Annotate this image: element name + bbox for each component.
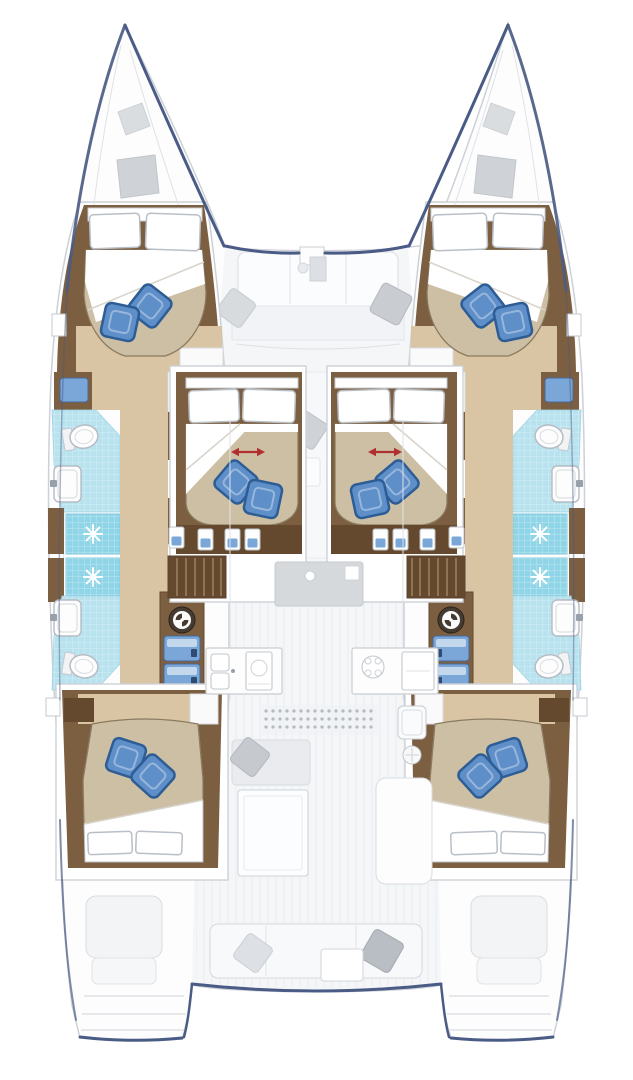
foredeck: [215, 247, 413, 349]
deck-plan-svg: [0, 0, 633, 1080]
cup-holder: [305, 571, 315, 581]
faucet: [231, 669, 235, 673]
sliding-door-track: [260, 705, 378, 735]
helm-seat-port: [86, 896, 162, 958]
lounge-seat: [376, 778, 432, 884]
windlass-fitting: [310, 257, 326, 281]
aft-table: [321, 949, 363, 981]
helm-seat-starboard: [471, 896, 547, 958]
door-sill: [260, 705, 378, 735]
transom-step-starboard: [477, 958, 541, 984]
dining-table: [238, 790, 308, 876]
sink-basin: [211, 673, 229, 689]
hatch-small: [345, 566, 359, 580]
deck-fitting: [298, 263, 308, 273]
catamaran-floor-plan: [0, 0, 633, 1080]
galley-starboard-counter: [352, 648, 438, 694]
sink-basin: [211, 654, 229, 671]
galley-port-counter: [206, 648, 282, 694]
transom-step-port: [92, 958, 156, 984]
